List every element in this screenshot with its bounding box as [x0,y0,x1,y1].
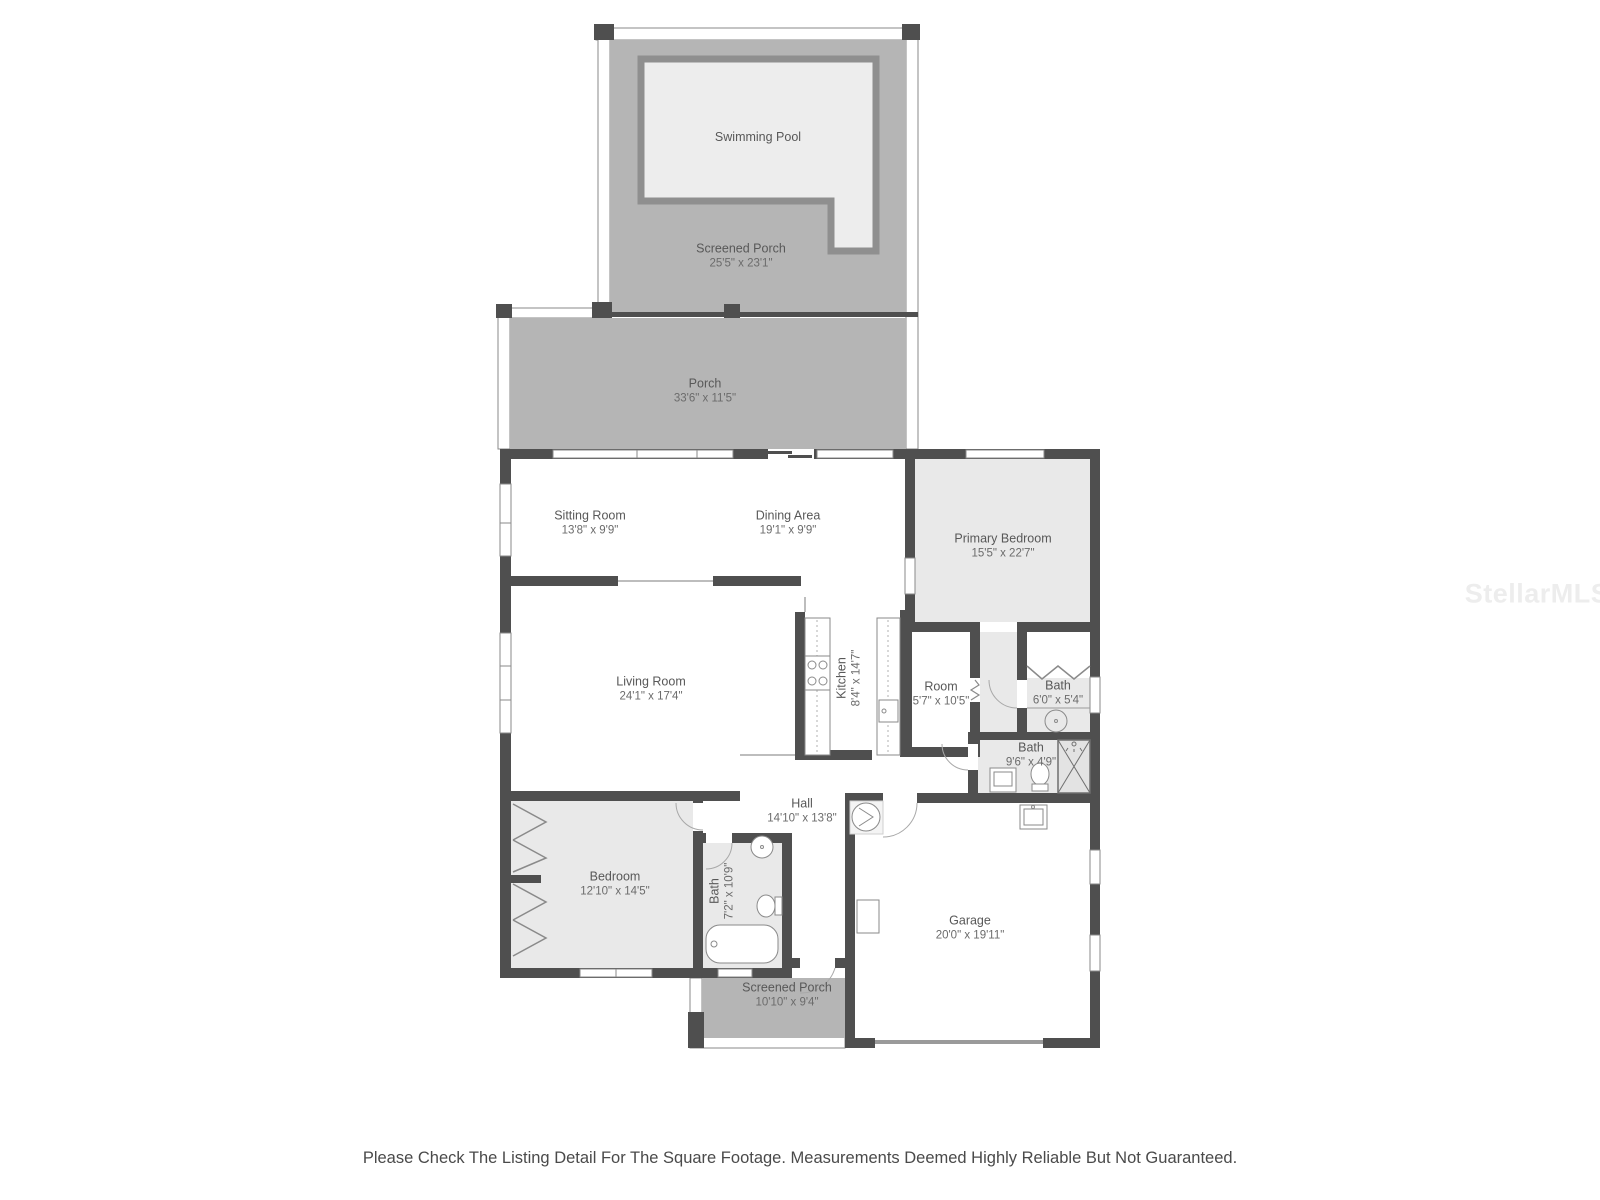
garage-door [875,1040,1043,1044]
porch-floor [510,318,906,449]
toilet-icon [757,895,775,917]
primary-bedroom-floor [915,459,1090,622]
floor-plan-page: Swimming Pool Screened Porch 25'5" x 23'… [0,0,1600,1200]
passage-floor [980,632,1017,740]
stove-icon [805,656,830,690]
utility-sink-icon [1020,805,1047,829]
kitchen-sink-icon [879,700,898,722]
floor-plan-drawing [0,0,1600,1200]
porch-divider-wall [598,312,918,317]
cased-opening-lines [618,581,805,755]
garage-cabinet [857,900,879,933]
toilet-icon [1031,763,1049,785]
disclaimer-text: Please Check The Listing Detail For The … [0,1149,1600,1168]
water-heater-icon [850,801,883,834]
screened-porch-bottom-floor [702,978,845,1038]
stellar-mls-watermark: StellarMLS [1465,579,1600,610]
shower-icon [1058,740,1090,793]
primary-closet-rod [1027,666,1090,679]
